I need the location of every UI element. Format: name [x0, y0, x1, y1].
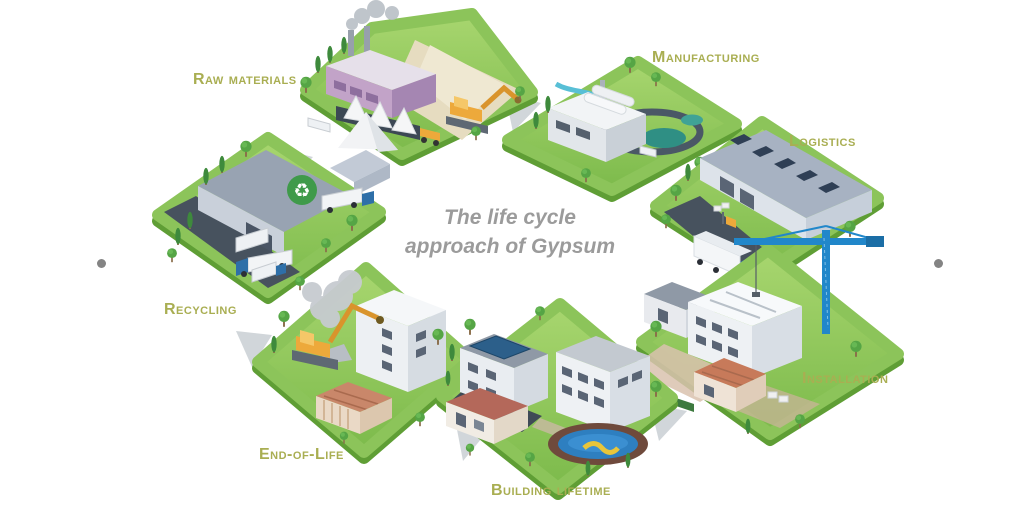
title-line-1: The life cycle — [385, 203, 635, 232]
label-end-of-life: End-of-Life — [259, 446, 344, 464]
label-logistics: Logistics — [789, 133, 856, 151]
title-line-2: approach of Gypsum — [385, 232, 635, 261]
small-truck — [308, 118, 330, 132]
carousel-nav-right-dot[interactable] — [934, 259, 943, 268]
diagram-title: The life cycle approach of Gypsum — [385, 203, 635, 262]
label-recycling: Recycling — [164, 301, 237, 319]
label-building-lifetime: Building lifetime — [491, 482, 611, 500]
label-raw-materials: Raw materials — [193, 71, 297, 89]
carousel-nav-left-dot[interactable] — [97, 259, 106, 268]
lifecycle-diagram: ♻ — [0, 0, 1024, 512]
label-installation: Installation — [802, 370, 888, 388]
recycle-icon: ♻ — [293, 180, 310, 202]
scene-raw-materials — [300, 0, 532, 160]
settling-pond — [642, 128, 686, 148]
swimming-pool — [548, 423, 648, 465]
scene-building-lifetime — [442, 304, 672, 494]
label-manufacturing: Manufacturing — [652, 49, 760, 67]
